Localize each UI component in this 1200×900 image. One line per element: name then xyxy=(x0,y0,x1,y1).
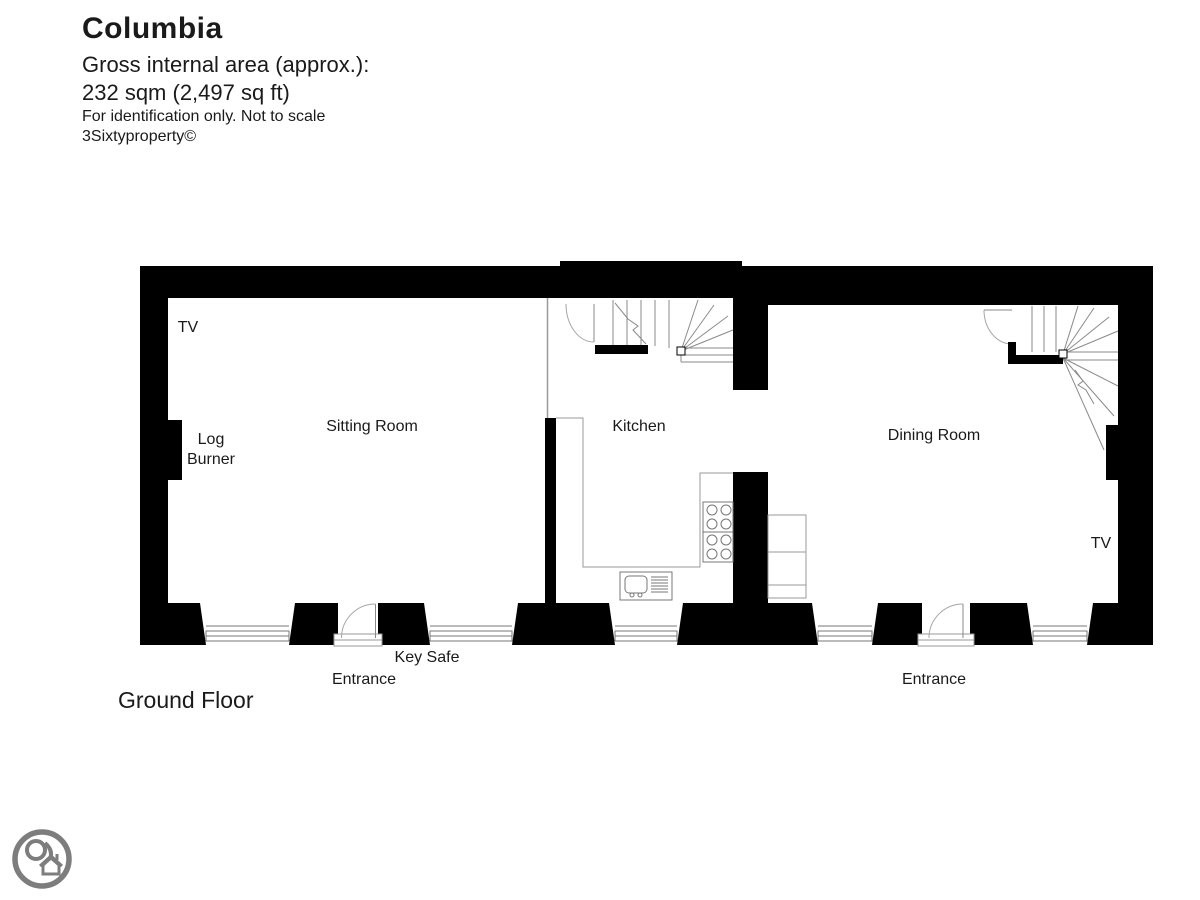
cupboard-unit xyxy=(768,585,806,598)
disclaimer-text: For identification only. Not to scale xyxy=(82,108,325,126)
label-tv-sitting: TV xyxy=(178,319,198,337)
dining-units xyxy=(768,515,806,598)
room-label-sitting: Sitting Room xyxy=(326,418,418,436)
label-entrance-right: Entrance xyxy=(902,671,966,689)
wall-divider-kitchen-dining-bottom xyxy=(733,472,768,603)
chimney-pier xyxy=(1106,425,1120,480)
kitchen-fixtures xyxy=(556,418,733,600)
wall-top xyxy=(140,266,1153,298)
stair-wall-bar xyxy=(595,345,648,354)
stair-wall-bar xyxy=(1008,355,1063,364)
room-label-kitchen: Kitchen xyxy=(612,418,665,436)
label-entrance-left: Entrance xyxy=(332,671,396,689)
wall-right xyxy=(1118,266,1153,645)
wall-divider-kitchen-dining-top xyxy=(733,266,768,390)
stair-newel xyxy=(677,347,685,355)
stair-newel xyxy=(1059,350,1067,358)
stair-door-dining xyxy=(984,310,1012,344)
doors xyxy=(334,304,1012,646)
wall-top-dining-inner xyxy=(768,298,1118,305)
label-log-burner-line2: Burner xyxy=(187,451,235,469)
label-tv-dining: TV xyxy=(1091,535,1111,553)
room-label-dining: Dining Room xyxy=(888,427,980,445)
label-log-burner-line1: Log xyxy=(198,431,225,449)
stairs-kitchen xyxy=(595,300,733,362)
hob xyxy=(703,502,733,562)
area-value: 232 sqm (2,497 sq ft) xyxy=(82,80,290,106)
stairs-dining xyxy=(1008,306,1118,450)
stair-door-kitchen xyxy=(566,304,594,342)
pin-circle xyxy=(27,841,45,859)
branding-text: 3Sixtyproperty© xyxy=(82,128,196,146)
log-burner-block xyxy=(168,420,182,480)
area-label: Gross internal area (approx.): xyxy=(82,52,369,78)
label-key-safe: Key Safe xyxy=(395,649,460,667)
floorplan-page: Columbia Gross internal area (approx.): … xyxy=(0,0,1200,900)
cupboard-unit xyxy=(768,552,806,585)
floor-label: Ground Floor xyxy=(118,687,254,714)
brand-logo-icon xyxy=(15,832,69,886)
cupboard-unit xyxy=(768,515,806,552)
wall-divider-sitting-kitchen xyxy=(545,418,556,603)
page-title: Columbia xyxy=(82,12,223,46)
sink-unit xyxy=(620,572,672,600)
wall-left xyxy=(140,266,168,645)
